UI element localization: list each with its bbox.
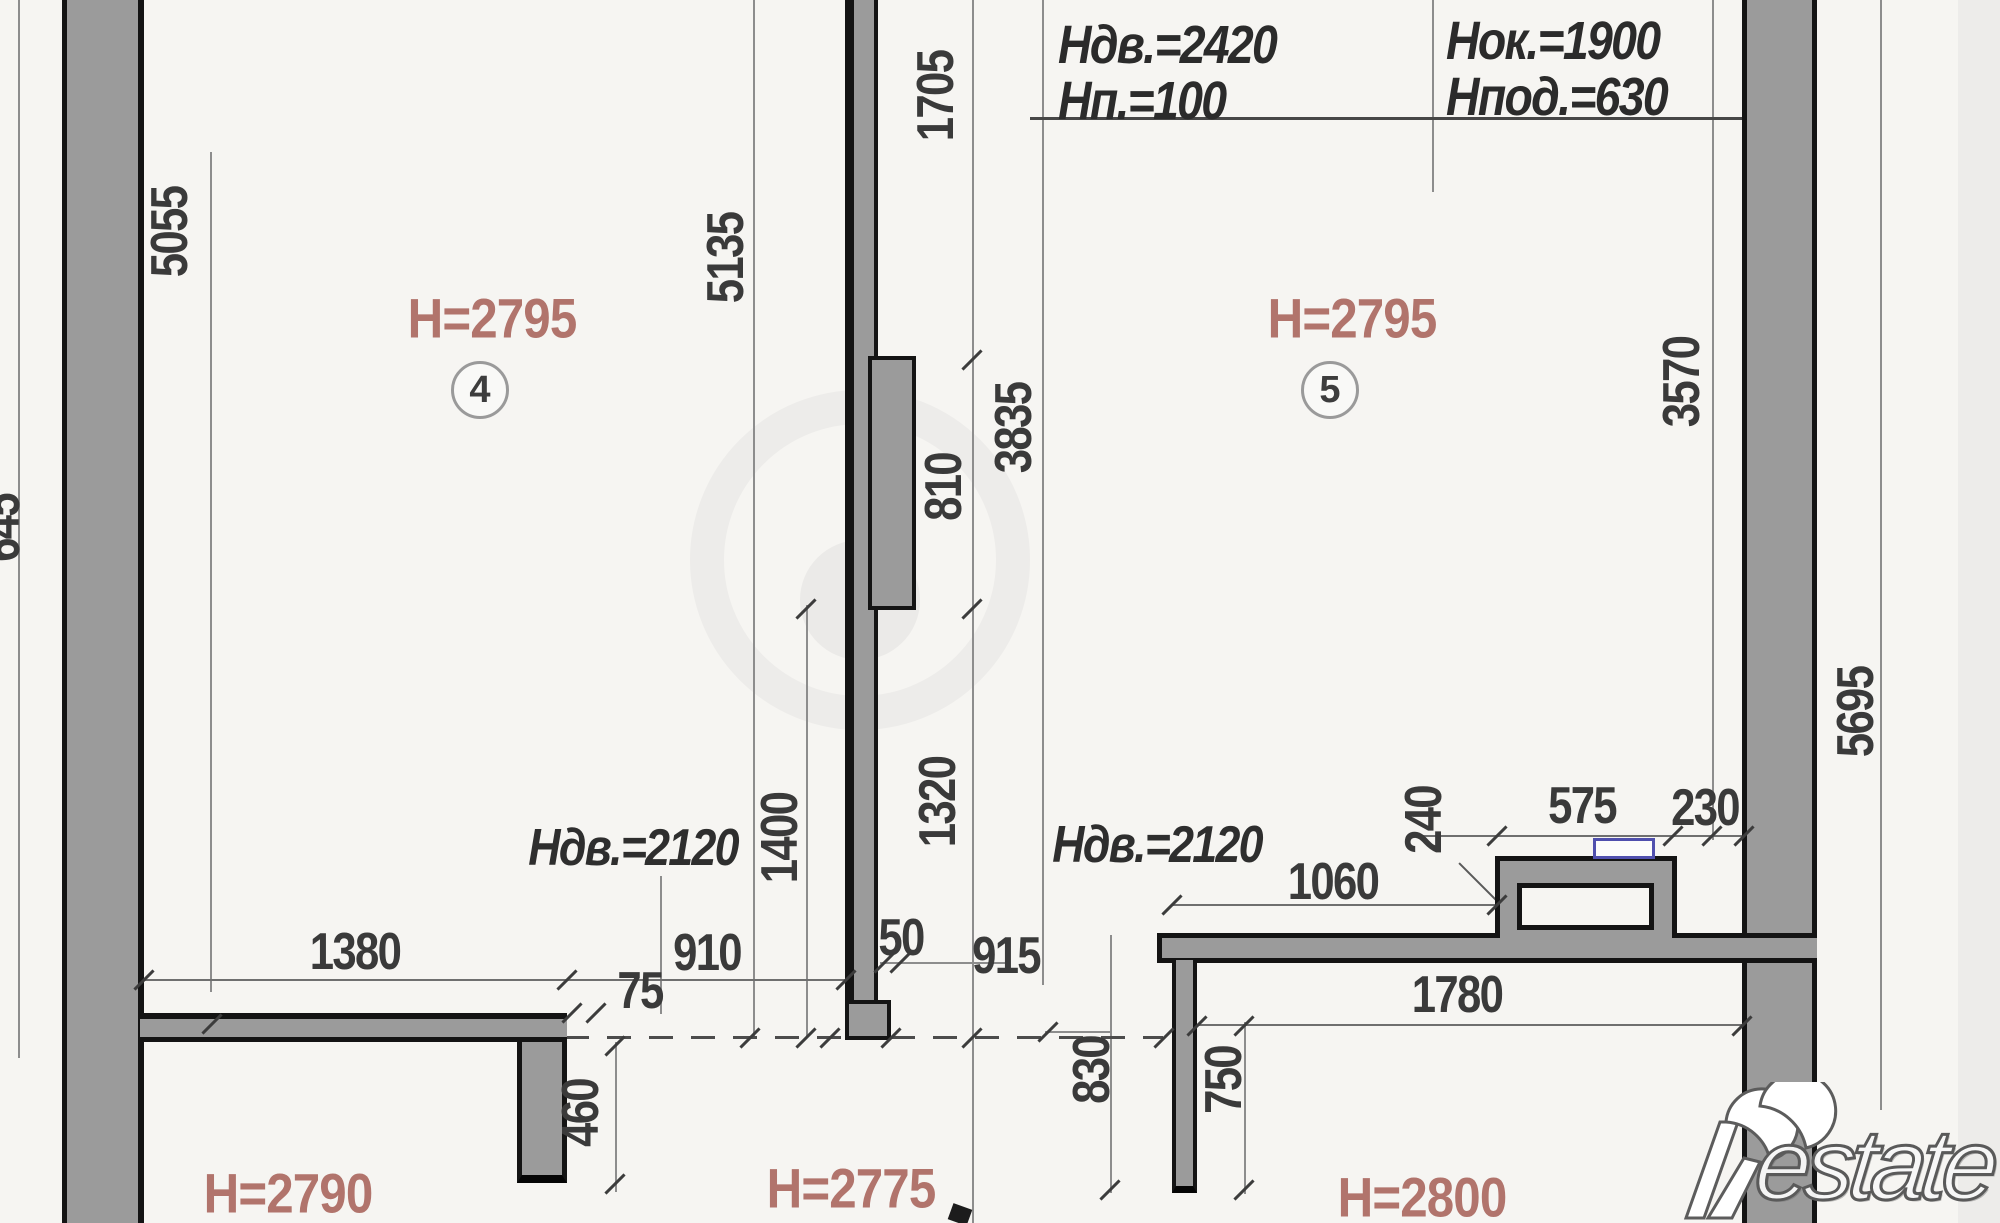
dim-3570: 3570 [1652,337,1712,427]
dim-1320: 1320 [908,757,968,847]
room-bottom-right-ceiling-label: H=2800 [1338,1165,1507,1223]
dim-5695: 5695 [1826,667,1886,757]
dim-460: 460 [551,1079,611,1147]
room-bottom-left-ceiling-label: H=2790 [204,1161,373,1223]
extension-line [615,1042,617,1192]
dim-915: 915 [972,926,1040,986]
annotation-sill-height: Нпод.=630 [1446,66,1667,128]
vent-marker [1593,838,1655,859]
extension-line [210,152,212,992]
dim-1380: 1380 [310,922,400,982]
extension-line [1880,0,1882,1110]
dim-left-partial: 645 [0,494,32,562]
room4-number-badge: 4 [451,361,509,419]
wall-central-pier [868,356,916,610]
dim-1400: 1400 [750,793,810,883]
dim-5055: 5055 [140,187,200,277]
dim-810: 810 [914,453,974,521]
dim-830: 830 [1062,1036,1122,1104]
dim-230: 230 [1671,778,1739,838]
dimension-line [144,979,847,981]
door-label-right: Ндв.=2120 [1052,815,1262,875]
room4-ceiling-label: H=2795 [408,286,577,351]
dimension-line [1045,1031,1111,1033]
dim-575: 575 [1548,776,1616,836]
wall-central-foot [845,1000,891,1040]
dim-tick [585,1002,606,1023]
room-bottom-center-ceiling-label: H=2775 [767,1156,936,1221]
dim-750: 750 [1194,1046,1254,1114]
wall-bottom-right [1157,933,1817,963]
extension-line [1712,0,1714,840]
dashed-opening-line [891,1036,1163,1039]
wall-bottom-left [140,1013,567,1042]
dim-1705: 1705 [906,51,966,141]
room4-number: 4 [469,369,490,412]
annotation-window-height: Нок.=1900 [1446,10,1659,72]
annotation-threshold-height: Нп.=100 [1058,70,1225,132]
dim-75: 75 [617,961,662,1021]
room5-number: 5 [1319,369,1340,412]
dim-50: 50 [878,908,923,968]
wall-right [1742,0,1817,1223]
extension-line [1432,0,1434,192]
outside-right-shade [1958,0,2000,1223]
dim-910: 910 [673,923,741,983]
room5-ceiling-label: H=2795 [1268,286,1437,351]
dim-1060: 1060 [1288,852,1378,912]
watermark-restate: estate [1648,1082,2000,1223]
door-label-left: Ндв.=2120 [528,818,738,878]
annotation-door-height: Ндв.=2420 [1058,14,1276,76]
dim-3835: 3835 [984,383,1044,473]
wall-left [62,0,144,1223]
extension-line [1042,0,1044,985]
dim-1780: 1780 [1412,965,1502,1025]
dim-5135: 5135 [696,213,756,303]
room5-number-badge: 5 [1301,361,1359,419]
floor-plan: Ндв.=2420 Нп.=100 Нок.=1900 Нпод.=630 H=… [0,0,2000,1223]
vent-shaft-opening [1517,883,1654,930]
restate-text: estate [1750,1108,1999,1223]
dim-240: 240 [1394,786,1454,854]
partial-mark [948,1203,973,1223]
